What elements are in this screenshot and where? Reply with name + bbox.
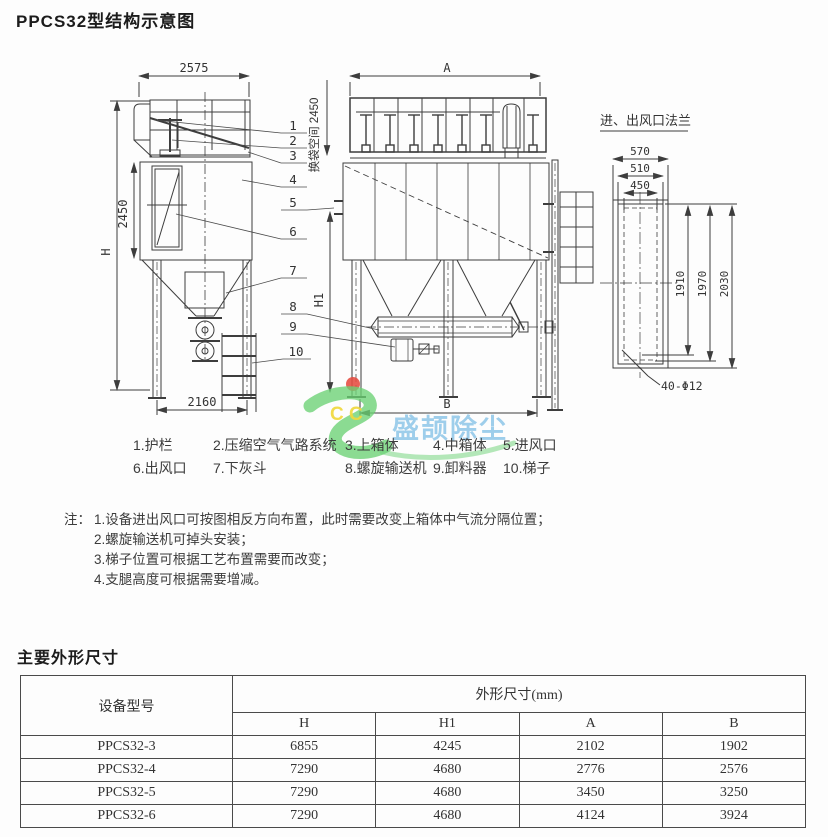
callout-5: 5 [289, 195, 297, 210]
parts-legend: 1.护栏 2.压缩空气气路系统 3.上箱体 4.中箱体 5.进风口 6.出风口 … [133, 434, 623, 480]
air-tank [503, 104, 520, 148]
h1-cell: 4680 [376, 805, 519, 828]
legend-item-6: 6.出风口 [133, 457, 213, 480]
legend-item-9: 9.卸料器 [433, 457, 503, 480]
model-cell: PPCS32-6 [21, 805, 233, 828]
structure-diagram: 2575 H 2450 [0, 0, 828, 475]
legend-item-10: 10.梯子 [503, 457, 623, 480]
dim-2160: 2160 [188, 395, 217, 409]
legend-item-8: 8.螺旋输送机 [345, 457, 433, 480]
column-header-b: B [662, 713, 805, 736]
legend-item-5: 5.进风口 [503, 434, 623, 457]
column-header-h: H [233, 713, 376, 736]
callout-10: 10 [288, 344, 303, 359]
front-view: A [312, 61, 593, 417]
dim-B: B [443, 397, 450, 411]
table-row: PPCS32-4 7290 4680 2776 2576 [21, 759, 806, 782]
callout-3: 3 [289, 148, 297, 163]
b-cell: 1902 [662, 736, 805, 759]
h-cell: 6855 [233, 736, 376, 759]
flange-detail-view: 进、出风口法兰 570 510 450 1910 1970 203 [600, 113, 737, 393]
a-cell: 2102 [519, 736, 662, 759]
legend-item-2: 2.压缩空气气路系统 [213, 434, 345, 457]
a-cell: 3450 [519, 782, 662, 805]
column-header-a: A [519, 713, 662, 736]
h1-cell: 4680 [376, 782, 519, 805]
callout-7: 7 [289, 263, 297, 278]
note-1: 1.设备进出风口可按图相反方向布置，此时需要改变上箱体中气流分隔位置； [94, 510, 551, 530]
dimensions-group-header: 外形尺寸(mm) [233, 676, 806, 713]
note-4: 4.支腿高度可根据需要增减。 [94, 570, 551, 590]
dim-1970: 1970 [696, 271, 709, 298]
dim-450: 450 [630, 179, 650, 192]
legend-item-3: 3.上箱体 [345, 434, 433, 457]
a-cell: 2776 [519, 759, 662, 782]
a-cell: 4124 [519, 805, 662, 828]
callout-4: 4 [289, 172, 297, 187]
dim-510: 510 [630, 162, 650, 175]
h-cell: 7290 [233, 805, 376, 828]
notes-label: 注： [64, 510, 94, 590]
legend-row-1: 1.护栏 2.压缩空气气路系统 3.上箱体 4.中箱体 5.进风口 [133, 434, 623, 457]
model-cell: PPCS32-5 [21, 782, 233, 805]
h1-cell: 4680 [376, 759, 519, 782]
left-side-view: 2575 H 2450 [99, 61, 256, 415]
b-cell: 2576 [662, 759, 805, 782]
table-row: PPCS32-5 7290 4680 3450 3250 [21, 782, 806, 805]
bag-space-dim: 换袋空间 2450 [307, 80, 327, 172]
note-2: 2.螺旋输送机可掉头安装； [94, 530, 551, 550]
dim-2575: 2575 [180, 61, 209, 75]
flange-view-title: 进、出风口法兰 [600, 113, 691, 128]
dim-1910: 1910 [674, 271, 687, 298]
column-header-h1: H1 [376, 713, 519, 736]
dim-A: A [443, 61, 451, 75]
b-cell: 3924 [662, 805, 805, 828]
note-3: 3.梯子位置可根据工艺布置需要而改变； [94, 550, 551, 570]
legend-item-4: 4.中箱体 [433, 434, 503, 457]
callout-6: 6 [289, 224, 297, 239]
dim-2030: 2030 [718, 271, 731, 298]
dim-2450: 2450 [116, 200, 130, 229]
model-column-header: 设备型号 [21, 676, 233, 736]
callout-leaders [155, 120, 395, 363]
catalog-page: { "page_title": "PPCS32型结构示意图", "diagram… [0, 0, 828, 837]
callout-2: 2 [289, 133, 297, 148]
legend-item-7: 7.下灰斗 [213, 457, 345, 480]
dim-H1: H1 [312, 293, 326, 307]
table-section-heading: 主要外形尺寸 [17, 644, 119, 668]
dim-H: H [99, 248, 113, 255]
b-cell: 3250 [662, 782, 805, 805]
legend-item-1: 1.护栏 [133, 434, 213, 457]
dim-570: 570 [630, 145, 650, 158]
callout-numbers: 1 2 3 4 5 6 7 8 9 10 [288, 118, 303, 359]
h-cell: 7290 [233, 759, 376, 782]
table-row: PPCS32-3 6855 4245 2102 1902 [21, 736, 806, 759]
notes-block: 注： 1.设备进出风口可按图相反方向布置，此时需要改变上箱体中气流分隔位置； 2… [64, 510, 551, 590]
h1-cell: 4245 [376, 736, 519, 759]
dimensions-table: 设备型号 外形尺寸(mm) H H1 A B PPCS32-3 6855 424… [20, 675, 806, 828]
h-cell: 7290 [233, 782, 376, 805]
model-cell: PPCS32-4 [21, 759, 233, 782]
model-cell: PPCS32-3 [21, 736, 233, 759]
callout-1: 1 [289, 118, 297, 133]
bolt-callout: 40-Φ12 [661, 379, 703, 393]
bag-space-label: 换袋空间 2450 [307, 98, 321, 173]
callout-8: 8 [289, 299, 297, 314]
legend-row-2: 6.出风口 7.下灰斗 8.螺旋输送机 9.卸料器 10.梯子 [133, 457, 623, 480]
callout-9: 9 [289, 319, 297, 334]
notes-items: 1.设备进出风口可按图相反方向布置，此时需要改变上箱体中气流分隔位置； 2.螺旋… [94, 510, 551, 590]
table-row: PPCS32-6 7290 4680 4124 3924 [21, 805, 806, 828]
logo-letters: C C [330, 404, 363, 425]
